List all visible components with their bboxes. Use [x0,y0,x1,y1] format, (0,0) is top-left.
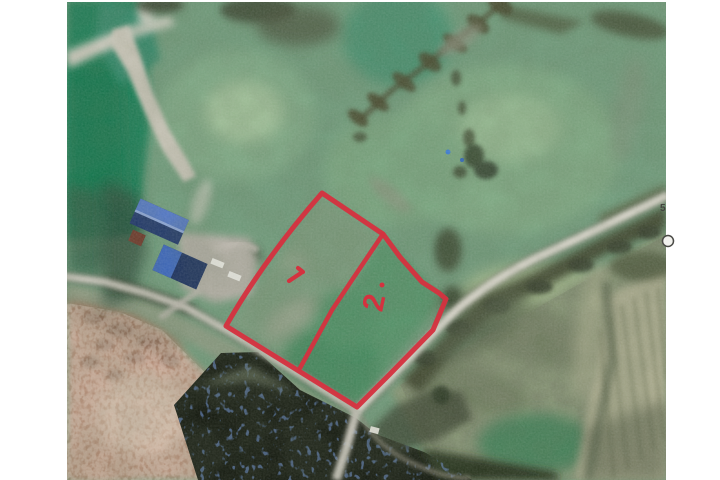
svg-text:5: 5 [660,203,666,214]
